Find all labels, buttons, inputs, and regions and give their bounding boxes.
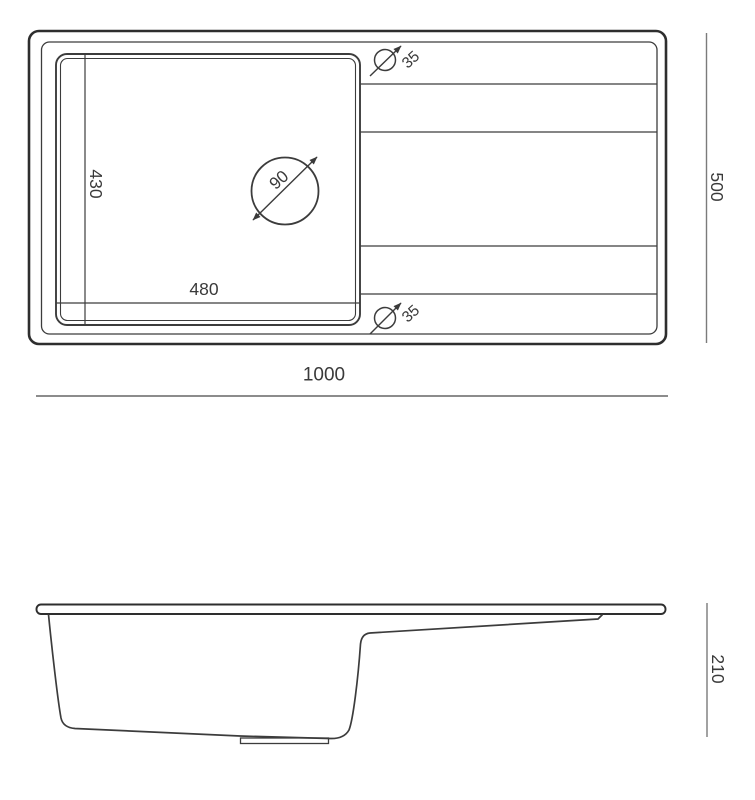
overall-width-label: 1000 — [303, 365, 345, 386]
tap-hole-top: 35 — [370, 46, 423, 76]
sink-dimension-drawing: 90 35 35 430 480 500 1000 — [0, 0, 755, 800]
drain-hole-circle — [252, 158, 319, 225]
dimension-overall-width: 1000 — [36, 365, 668, 397]
top-view-inner-rim — [42, 42, 658, 334]
drain-hole: 90 — [252, 157, 319, 225]
drawing-svg: 90 35 35 430 480 500 1000 — [0, 0, 755, 800]
drain-hole-diameter-label: 90 — [266, 167, 293, 194]
side-view-profile — [49, 615, 603, 739]
tap-hole-bottom: 35 — [370, 302, 423, 334]
top-view: 90 35 35 430 480 — [29, 31, 666, 344]
bowl-depth-label: 430 — [86, 169, 106, 198]
dimension-overall-depth: 500 — [707, 33, 728, 343]
side-view — [37, 605, 666, 744]
drainer-lines — [360, 84, 657, 294]
dimension-overall-height: 210 — [707, 603, 728, 737]
overall-depth-label: 500 — [707, 172, 727, 201]
overall-height-label: 210 — [708, 654, 728, 683]
tap-hole-bottom-diameter-label: 35 — [399, 302, 423, 326]
tap-hole-bottom-circle — [375, 308, 396, 329]
side-view-rim — [37, 605, 666, 615]
bowl-width-label: 480 — [189, 279, 218, 299]
tap-hole-top-circle — [375, 50, 396, 71]
tap-hole-top-diameter-label: 35 — [399, 48, 423, 72]
top-view-outer-edge — [29, 31, 666, 344]
